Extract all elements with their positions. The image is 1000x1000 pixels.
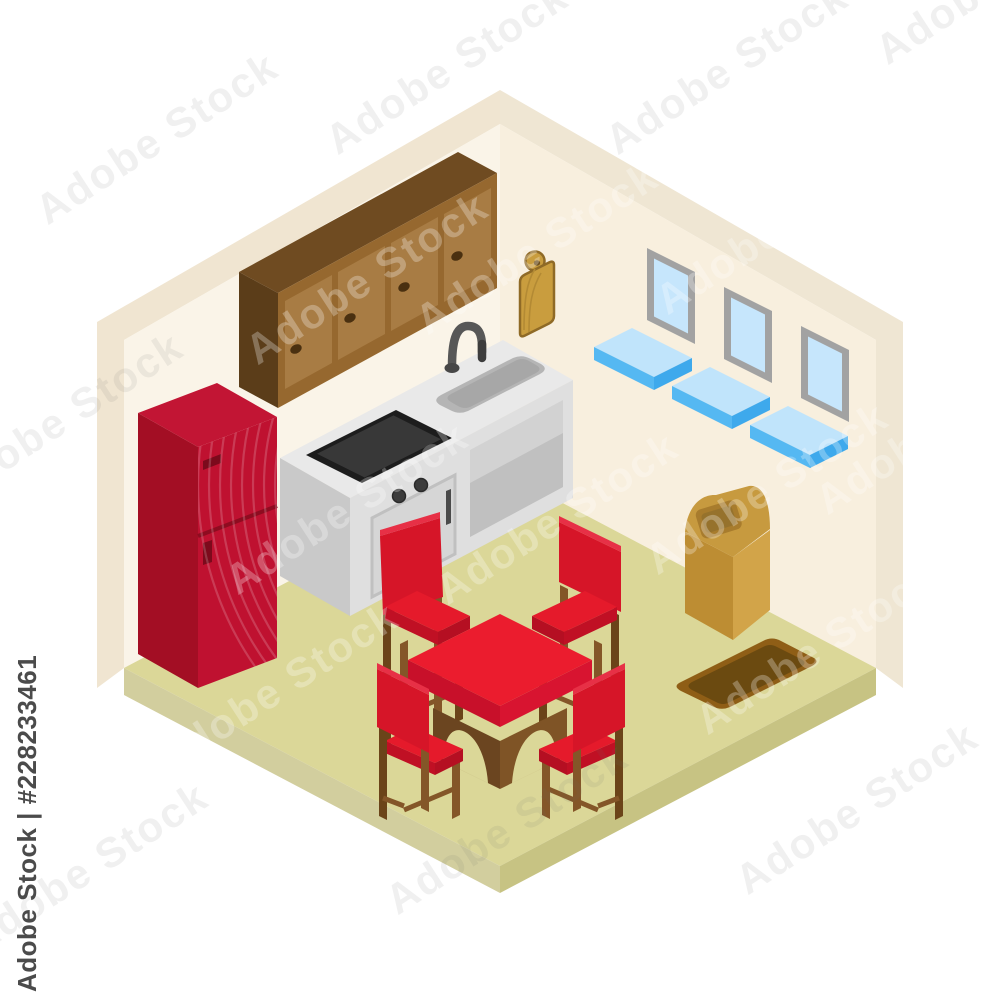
kitchen-illustration [0,0,1000,1000]
cutting-board-hole [534,260,540,265]
cutting-board [520,252,554,337]
watermark-label: Adobe Stock | #228233461 [12,655,43,992]
stock-image-canvas: Adobe Stock Adobe Stock Adobe Stock Adob… [0,0,1000,1000]
oven-handle [446,489,451,525]
cabinet-side [239,272,278,408]
trash-bin [685,486,770,640]
fridge-side [138,413,198,688]
